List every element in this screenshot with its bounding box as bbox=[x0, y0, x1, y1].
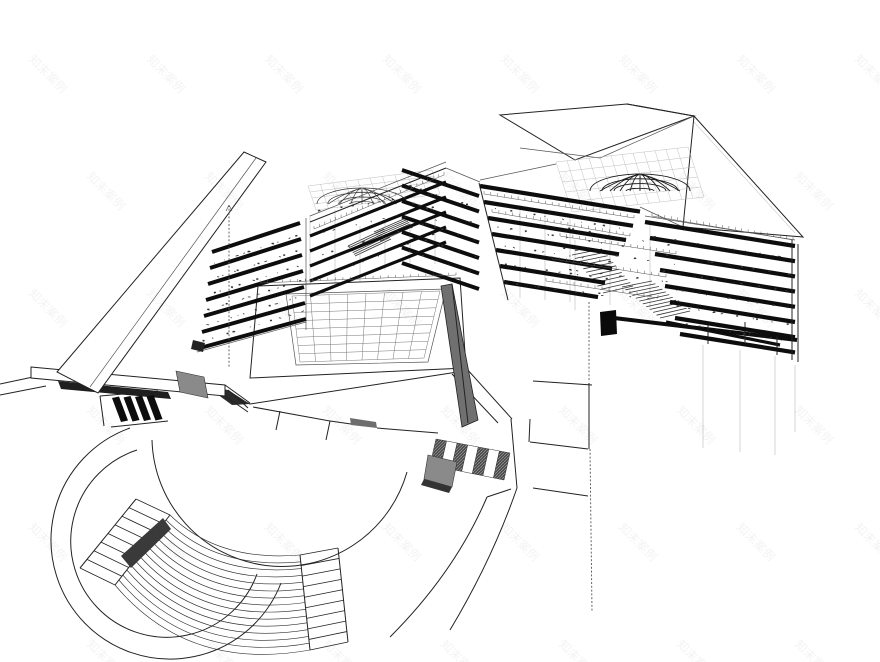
watermark-text: 知末案例 bbox=[556, 403, 601, 448]
watermark-text: 知末案例 bbox=[556, 637, 601, 662]
watermark-text: 知末案例 bbox=[792, 403, 837, 448]
watermark-text: 知末案例 bbox=[498, 52, 543, 97]
watermark-text: 知末案例 bbox=[792, 169, 837, 214]
east-edge-columns bbox=[792, 240, 798, 362]
under-structure-columns bbox=[703, 345, 795, 455]
crosswalk-zebra-stripes bbox=[112, 395, 163, 422]
watermark-text: 知末案例 bbox=[792, 637, 837, 662]
curved-road-outer bbox=[450, 488, 517, 630]
watermark-text: 知末案例 bbox=[26, 520, 71, 565]
right-building bbox=[479, 104, 803, 455]
watermark-text: 知末案例 bbox=[84, 169, 129, 214]
watermark-text: 知末案例 bbox=[734, 286, 779, 331]
site-section-line-lower bbox=[590, 449, 592, 611]
watermark-text: 知末案例 bbox=[26, 286, 71, 331]
watermark-text: 知末案例 bbox=[144, 52, 189, 97]
walkway-ramp bbox=[176, 371, 208, 398]
section-plane-face bbox=[57, 152, 266, 393]
watermark-text: 知末案例 bbox=[262, 52, 307, 97]
ridge-corner bbox=[479, 183, 508, 300]
section-plane bbox=[57, 152, 266, 393]
plane-base-shadow bbox=[191, 340, 205, 352]
roof-plane-west bbox=[500, 104, 694, 160]
architectural-drawing-canvas: 知末案例知末案例知末案例知末案例知末案例知末案例知末案例知末案例知末案例知末案例… bbox=[0, 0, 880, 662]
watermark-text: 知末案例 bbox=[616, 520, 661, 565]
gridshell-dome-right bbox=[590, 174, 690, 191]
amphitheater-right-stair bbox=[300, 548, 348, 650]
watermark-text: 知末案例 bbox=[262, 520, 307, 565]
watermark-text: 知末案例 bbox=[202, 403, 247, 448]
watermark-text: 知末案例 bbox=[380, 520, 425, 565]
watermark-text: 知末案例 bbox=[498, 520, 543, 565]
watermark-text: 知末案例 bbox=[616, 52, 661, 97]
watermark-text: 知末案例 bbox=[734, 520, 779, 565]
watermark-text: 知末案例 bbox=[852, 52, 880, 97]
watermark-text: 知末案例 bbox=[674, 637, 719, 662]
curved-road-inner bbox=[390, 497, 487, 637]
watermark-text: 知末案例 bbox=[320, 637, 365, 662]
watermark-text: 知末案例 bbox=[852, 286, 880, 331]
watermark-text: 知末案例 bbox=[202, 637, 247, 662]
atrium-core-black bbox=[600, 310, 617, 336]
watermark-text: 知末案例 bbox=[852, 520, 880, 565]
roof-plane-east bbox=[683, 116, 803, 237]
watermark-text: 知末案例 bbox=[616, 286, 661, 331]
watermark-text: 知末案例 bbox=[380, 52, 425, 97]
watermark-text: 知末案例 bbox=[26, 52, 71, 97]
watermark-text: 知末案例 bbox=[674, 403, 719, 448]
watermark-text: 知末案例 bbox=[438, 637, 483, 662]
watermark-text: 知末案例 bbox=[734, 52, 779, 97]
